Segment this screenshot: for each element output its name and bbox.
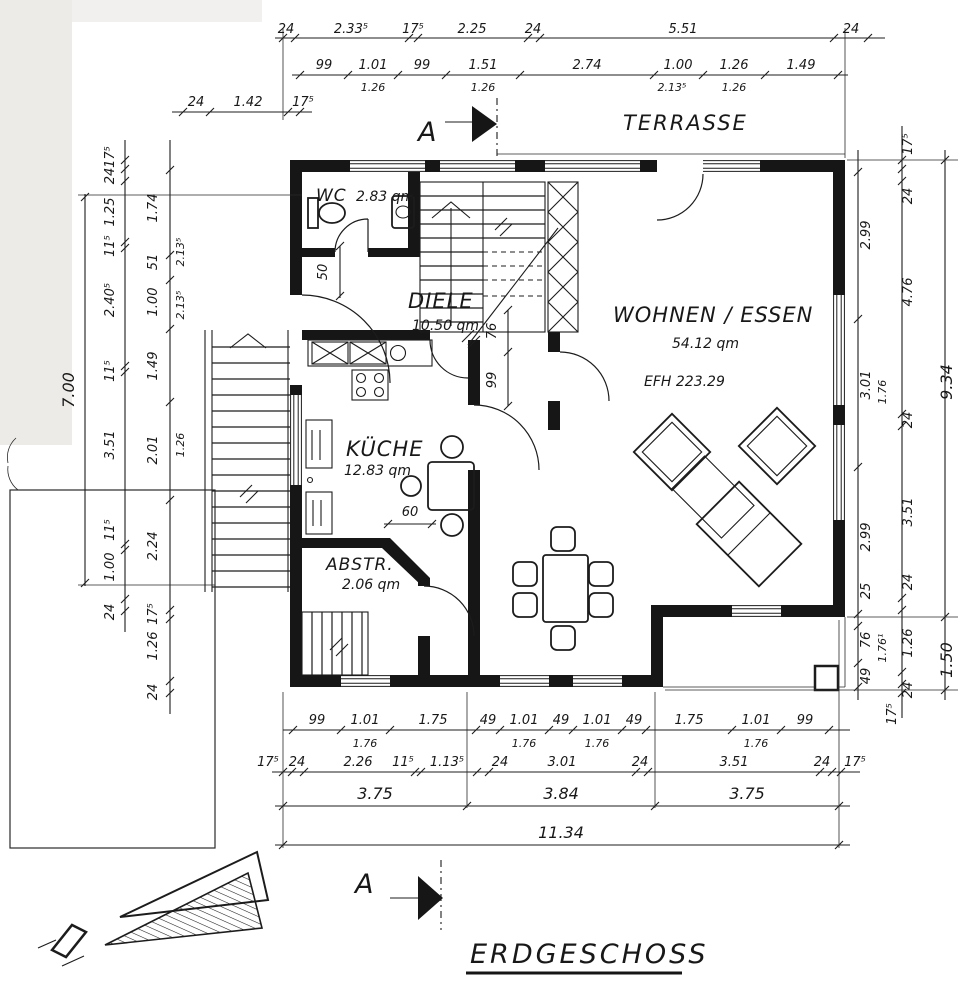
dim-label: 4.76 [901, 278, 916, 307]
dim-sublabel: 1.76 [585, 737, 610, 750]
section-marker-top: A [416, 98, 497, 158]
room-area-diele: 10.50 qm [412, 318, 479, 334]
dim-label: 1.00 [103, 553, 118, 582]
dim-label: 5.51 [669, 22, 698, 37]
dim-label: 76 [485, 323, 500, 340]
dim-sublabel: 2.13⁵ [174, 238, 187, 267]
dim-label: 1.26 [901, 629, 916, 658]
property-lines [7, 438, 215, 848]
section-arrow-top-icon [472, 106, 497, 142]
dim-label: 2.01 [146, 436, 161, 465]
dim-label: 1.26 [720, 58, 749, 73]
dim-label: 60 [402, 505, 419, 520]
section-letter-top: A [416, 117, 436, 148]
dim-label: 1.75 [419, 713, 448, 728]
dim-label: 17⁵ [885, 703, 900, 725]
dim-label: 2.74 [573, 58, 602, 73]
dim-label: 99 [316, 58, 333, 73]
dim-sublabel: 1.76 [876, 380, 889, 405]
section-letter-bottom: A [353, 869, 373, 900]
room-area-wc: 2.83 qm [356, 189, 414, 205]
dim-label: 3.75 [729, 784, 765, 803]
dim-label: 17⁵ [844, 755, 866, 770]
room-label-kueche: KÜCHE [346, 436, 424, 461]
dim-label: 1.42 [234, 95, 263, 110]
dim-label: 17⁵ [901, 133, 916, 155]
dim-sublabel: 1.26 [361, 81, 386, 94]
dim-label: 49 [859, 668, 874, 685]
porch [663, 617, 845, 690]
dim-label: 25 [859, 583, 874, 600]
dim-label: 24 [492, 755, 509, 770]
dim-label: 7.00 [59, 372, 78, 408]
dim-label: 76 [859, 632, 874, 649]
dim-label: 99 [797, 713, 814, 728]
dim-label: 1.75 [675, 713, 704, 728]
dim-label: 1.13⁵ [430, 755, 464, 770]
dim-label: 1.49 [787, 58, 816, 73]
dim-label: 3.75 [357, 784, 393, 803]
dim-label: 24 [901, 682, 916, 699]
dim-sublabel: 2.13⁵ [658, 81, 687, 94]
dim-sublabel: 1.26 [722, 81, 747, 94]
dim-label: 1.01 [351, 713, 380, 728]
dim-label: 11⁵ [103, 235, 118, 257]
room-label-wohnen: WOHNEN / ESSEN [613, 303, 813, 327]
dim-label: 24 [278, 22, 295, 37]
dim-label: 49 [480, 713, 497, 728]
room-area-wohnen: 54.12 qm [672, 336, 739, 352]
entrance-stairs [205, 330, 290, 592]
dim-label: 3.01 [548, 755, 577, 770]
dim-label: 3.51 [901, 498, 916, 527]
shaft-hatched [548, 182, 578, 332]
dim-label: 24 [188, 95, 205, 110]
dining-set [513, 527, 613, 650]
dim-label: 9.34 [937, 364, 956, 400]
dim-label: 2.40⁵ [103, 283, 118, 317]
north-arrow [38, 852, 268, 966]
dim-label: 11.34 [538, 823, 584, 842]
dim-label: 99 [485, 372, 500, 389]
dim-label: 24 [103, 604, 118, 621]
section-arrow-bottom-icon [418, 876, 443, 920]
dim-label: 3.84 [543, 784, 579, 803]
dim-label: 17⁵ [103, 146, 118, 168]
dim-label: 1.00 [146, 288, 161, 317]
dim-label: 51 [146, 254, 161, 271]
dim-label: 1.51 [469, 58, 498, 73]
living-furniture [634, 408, 815, 587]
floor-plan-drawing: A A 24 2.33⁵ 17⁵ 2.25 [0, 0, 975, 983]
dim-sublabel: 1.76 [744, 737, 769, 750]
dim-label: 49 [626, 713, 643, 728]
room-label-diele: DIELE [408, 289, 474, 313]
dim-label: 24 [525, 22, 542, 37]
dim-label: 2.33⁵ [334, 22, 368, 37]
dim-label: 1.00 [664, 58, 693, 73]
dim-label: 49 [553, 713, 570, 728]
dim-label: 24 [103, 168, 118, 185]
dim-label: 17⁵ [257, 755, 279, 770]
dim-sublabel: 1.76 [353, 737, 378, 750]
dim-label: 24 [901, 412, 916, 429]
efh-note: EFH 223.29 [644, 374, 725, 390]
section-marker-bottom: A [353, 860, 443, 930]
dim-label: 24 [146, 684, 161, 701]
dim-label: 2.99 [859, 523, 874, 552]
dim-label: 1.49 [146, 352, 161, 381]
dim-label: 11⁵ [103, 519, 118, 541]
page-title: ERDGESCHOSS [470, 939, 708, 970]
dimension-labels: 24 2.33⁵ 17⁵ 2.25 24 5.51 24 99 1.01 99 … [59, 22, 956, 842]
dim-sublabel: 1.26 [471, 81, 496, 94]
interior-walls [302, 172, 560, 675]
dim-label: 24 [632, 755, 649, 770]
dim-label: 24 [814, 755, 831, 770]
terrace-label: TERRASSE [623, 111, 748, 135]
dim-label: 99 [414, 58, 431, 73]
floorplan-page: A A 24 2.33⁵ 17⁵ 2.25 [0, 0, 975, 983]
dim-label: 24 [843, 22, 860, 37]
dim-label: 1.50 [937, 642, 956, 678]
dim-label: 24 [901, 188, 916, 205]
room-label-wc: WC [316, 186, 347, 206]
dim-label: 17⁵ [292, 95, 314, 110]
basement-stairs [302, 612, 368, 675]
dim-label: 1.01 [359, 58, 388, 73]
dim-sublabel: 1.26 [174, 433, 187, 458]
dim-label: 24 [289, 755, 306, 770]
room-label-abstell: ABSTR. [325, 555, 394, 575]
dim-label: 3.51 [720, 755, 749, 770]
dim-label: 1.01 [742, 713, 771, 728]
dim-label: 11⁵ [103, 360, 118, 382]
dim-sublabel: 2.13⁵ [174, 291, 187, 320]
drawing-title: ERDGESCHOSS [466, 939, 708, 973]
dim-sublabel: 1.76¹ [876, 634, 889, 663]
dim-label: 50 [316, 264, 331, 281]
room-area-kueche: 12.83 qm [344, 463, 411, 479]
dim-label: 3.01 [859, 371, 874, 400]
dim-label: 1.26 [146, 632, 161, 661]
dim-label: 1.01 [510, 713, 539, 728]
dim-label: 17⁵ [402, 22, 424, 37]
dim-label: 17⁵ [146, 603, 161, 625]
dim-label: 11⁵ [392, 755, 414, 770]
dim-label: 2.26 [344, 755, 373, 770]
dim-sublabel: 1.76 [512, 737, 537, 750]
dim-label: 24 [901, 574, 916, 591]
scan-shading [0, 0, 262, 445]
dim-label: 99 [309, 713, 326, 728]
room-area-abstell: 2.06 qm [342, 577, 400, 593]
dim-label: 2.25 [458, 22, 487, 37]
dim-label: 1.74 [146, 194, 161, 223]
dim-label: 1.25 [103, 198, 118, 227]
dim-label: 1.01 [583, 713, 612, 728]
dim-label: 2.24 [146, 532, 161, 561]
dim-label: 3.51 [103, 431, 118, 460]
dim-label: 2.99 [859, 221, 874, 250]
